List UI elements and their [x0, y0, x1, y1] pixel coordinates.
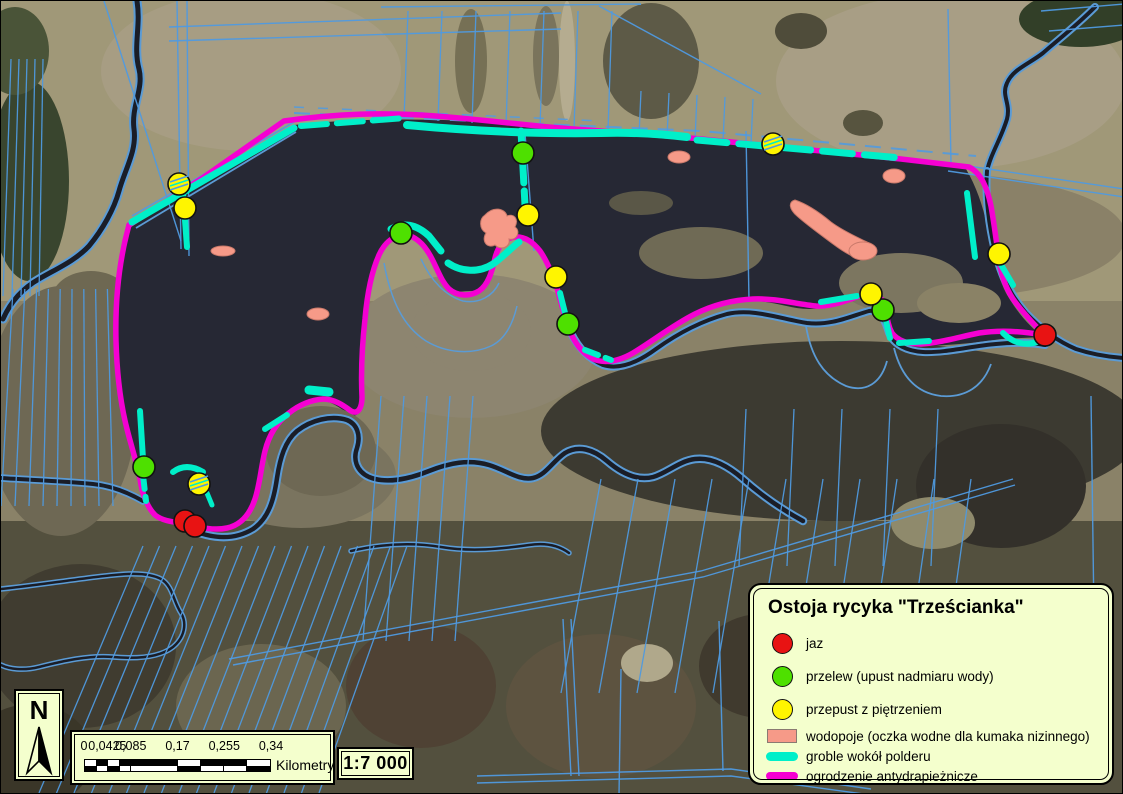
pond-area: [849, 242, 877, 260]
dike-line: [143, 475, 146, 501]
scalebar-tick-label: 0,255: [209, 739, 240, 753]
scalebar-tick-label: 0,085: [115, 739, 146, 753]
pond-area: [883, 169, 905, 183]
scale-ratio-box: 1:7 000: [337, 747, 414, 780]
north-arrow-box: N: [14, 689, 64, 781]
terrain-patch: [533, 6, 559, 106]
scalebar-tick-label: 0: [81, 739, 88, 753]
dike-line: [309, 390, 329, 392]
culvert-point: [860, 283, 882, 305]
scalebar-tick-labels: 00,04250,0850,170,2550,34: [84, 739, 325, 756]
marsh-island: [609, 191, 673, 215]
legend-item-groble: groble wokół polderu: [766, 746, 1098, 766]
scalebar-icon: [84, 759, 271, 772]
terrain-patch: [843, 110, 883, 136]
culvert-point: [545, 266, 567, 288]
culvert-point: [517, 204, 539, 226]
scalebar-tick-label: 0,34: [259, 739, 283, 753]
legend-item-jaz: jaz: [766, 627, 1098, 660]
scalebar-tick-label: 0,17: [165, 739, 189, 753]
spillway-point: [133, 456, 155, 478]
dike-line-icon: [766, 752, 798, 761]
scalebar-box: 00,04250,0850,170,2550,34 Kilometry: [70, 730, 335, 785]
spillway-point: [512, 142, 534, 164]
pond-area: [211, 246, 235, 256]
pond-area: [668, 151, 690, 163]
legend-item-ogrodzenie: ogrodzenie antydrapieżnicze: [766, 766, 1098, 786]
culvert-point: [174, 197, 196, 219]
legend-title: Ostoja rycyka "Trześcianka": [768, 597, 1098, 619]
spillway-point: [390, 222, 412, 244]
map-page: N 00,04250,0850,170,2550,34 Kilometry 1:…: [0, 0, 1123, 794]
culvert-point: [988, 243, 1010, 265]
marsh-island: [411, 291, 531, 371]
legend: Ostoja rycyka "Trześcianka" jaz przelew …: [748, 583, 1114, 785]
pond-area-icon: [766, 729, 798, 743]
terrain-patch: [621, 644, 673, 682]
legend-item-wodopoje: wodopoje (oczka wodne dla kumaka nizinne…: [766, 726, 1098, 746]
scale-ratio-label: 1:7 000: [343, 753, 408, 774]
north-arrow-icon: [23, 725, 55, 777]
spillway-point-icon: [766, 666, 798, 687]
weir-point: [1034, 324, 1056, 346]
legend-item-przelew: przelew (upust nadmiaru wody): [766, 660, 1098, 693]
culvert-point-icon: [766, 699, 798, 720]
marsh-island: [639, 227, 763, 279]
north-label: N: [16, 695, 62, 725]
weir-point-icon: [766, 633, 798, 654]
scalebar-unit-label: Kilometry: [276, 757, 334, 773]
terrain-patch: [559, 1, 575, 121]
terrain-patch: [455, 9, 487, 113]
dike-line: [140, 411, 143, 459]
weir-point: [184, 515, 206, 537]
fence-line-icon: [766, 772, 798, 780]
pond-area: [307, 308, 329, 320]
marsh-island: [917, 283, 1001, 323]
terrain-patch: [775, 13, 827, 49]
terrain-patch: [346, 624, 496, 748]
spillway-point: [557, 313, 579, 335]
terrain-patch: [603, 3, 699, 119]
dike-line: [899, 341, 929, 343]
legend-item-przepust: przepust z piętrzeniem: [766, 693, 1098, 726]
